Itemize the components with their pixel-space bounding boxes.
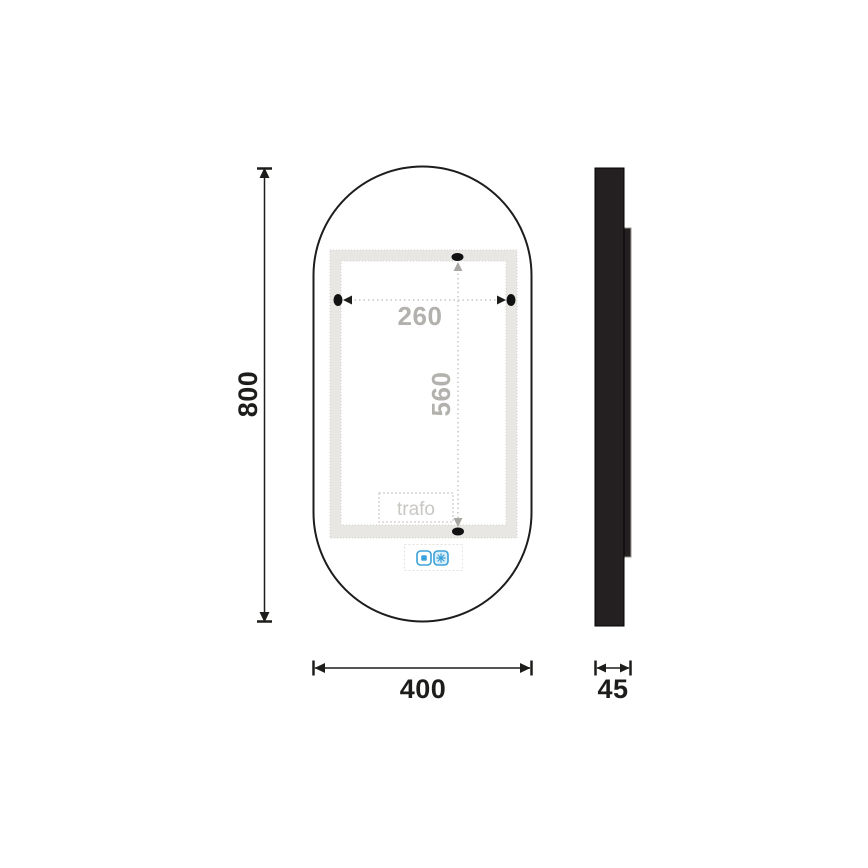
technical-drawing-canvas: 260 560 trafo: [0, 0, 868, 868]
touch-control-area: [405, 545, 463, 571]
overall-height-label: 800: [233, 371, 263, 418]
fixing-dot-bottom: [452, 528, 464, 536]
overall-width-label: 400: [400, 674, 447, 704]
side-view: 45: [595, 168, 631, 704]
arrow-left-icon: [315, 663, 326, 673]
mirror-drawing-svg: 260 560 trafo: [0, 0, 868, 868]
overall-height-dimension: 800: [233, 168, 272, 623]
depth-dimension: 45: [596, 661, 631, 705]
fixing-dot-left: [334, 294, 343, 306]
anti-fog-snowflake-icon[interactable]: [434, 551, 448, 565]
trafo-box: trafo: [379, 493, 453, 522]
side-mirror-body: [595, 168, 624, 626]
fixing-dot-top: [452, 253, 464, 261]
fixing-height-label: 560: [426, 372, 456, 417]
trafo-label: trafo: [397, 499, 435, 520]
depth-label: 45: [597, 674, 628, 704]
fixing-width-label: 260: [398, 301, 443, 331]
fixing-dot-right: [507, 294, 516, 306]
front-view: 260 560 trafo: [233, 167, 532, 705]
arrow-right-icon: [620, 664, 630, 673]
arrow-left-icon: [597, 664, 607, 673]
overall-width-dimension: 400: [314, 661, 532, 705]
arrow-right-icon: [520, 663, 531, 673]
